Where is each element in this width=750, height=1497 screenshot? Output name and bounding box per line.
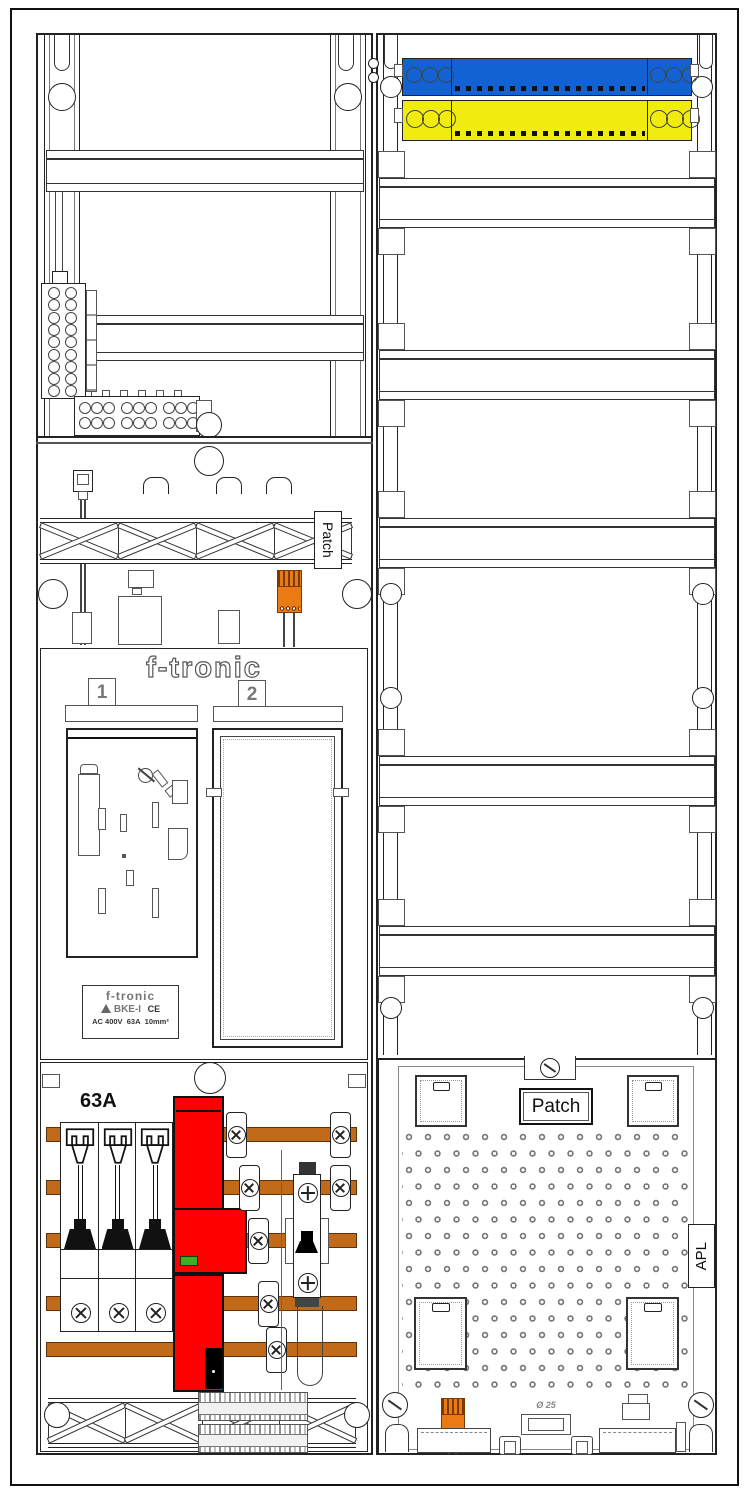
- neutral-busbar: [402, 58, 692, 96]
- patch-label-inner: Patch: [523, 1092, 589, 1121]
- bottom-frame: [599, 1428, 676, 1453]
- busbar-clip: [394, 108, 403, 123]
- frame-slot: [433, 1082, 450, 1091]
- electrical-cabinet-diagram: Patch f-tronic 1 2: [0, 0, 750, 1497]
- edge-fitting: [676, 1422, 686, 1452]
- knockout-label: Ø 25: [521, 1400, 571, 1412]
- busbar-clip: [690, 64, 699, 77]
- frame-slot: [432, 1303, 450, 1312]
- terminal-strip: [198, 1424, 308, 1453]
- patch-label-text: Patch: [532, 1096, 581, 1118]
- panel-link: [368, 58, 379, 69]
- mount-slot: [699, 35, 713, 69]
- step-bracket: [622, 1403, 650, 1420]
- busbar-terminal-hole: [438, 67, 454, 83]
- u-clip-inner: [504, 1441, 516, 1454]
- busbar-clip: [690, 108, 699, 123]
- apl-label-box: APL: [688, 1224, 715, 1288]
- corner-foot: [385, 1424, 409, 1452]
- apl-label-text: APL: [693, 1242, 710, 1270]
- mount-hole: [344, 1402, 370, 1428]
- busbar-terminal-hole: [650, 67, 666, 83]
- busbar-terminal-hole: [438, 110, 456, 128]
- u-clip-inner: [576, 1441, 588, 1454]
- panel-link: [368, 72, 379, 83]
- mount-hole: [44, 1402, 70, 1428]
- mount-hole: [380, 76, 402, 98]
- busbar-clip: [394, 64, 403, 77]
- knockout-inner: [528, 1418, 564, 1431]
- corner-foot: [689, 1424, 713, 1452]
- frame-slot: [644, 1303, 662, 1312]
- bottom-frame: [417, 1428, 491, 1453]
- busbar-terminal-hole: [406, 67, 422, 83]
- busbar-terminal-hole: [422, 67, 438, 83]
- earth-busbar: [402, 100, 692, 141]
- patch-panel-label: Patch: [519, 1088, 593, 1125]
- frame-slot: [645, 1082, 662, 1091]
- busbar-terminal-hole: [666, 67, 682, 83]
- terminal-strip: [198, 1392, 308, 1421]
